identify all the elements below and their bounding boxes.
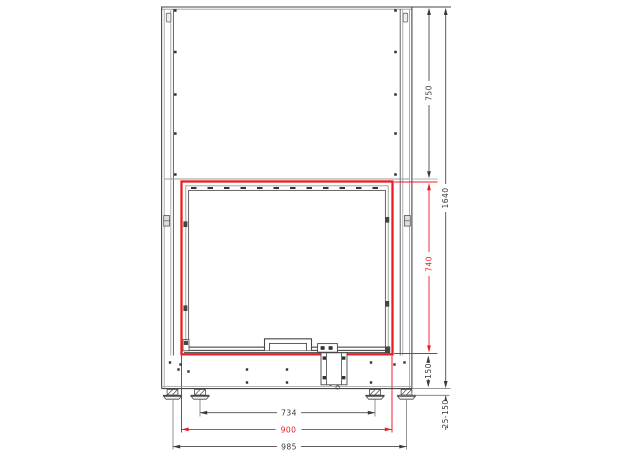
door-glass-frame: [189, 190, 386, 347]
door-latch-plate: [318, 344, 338, 353]
leveling-foot: [397, 389, 416, 399]
mounting-bracket: [321, 353, 347, 389]
drawing-canvas: 750 740 150 1640 25-150 734: [0, 0, 624, 460]
left-side-latch: [164, 216, 170, 227]
dimension-top-section-height: 750: [412, 8, 438, 179]
door-right-corner-block: [385, 346, 390, 352]
door-hinge-marks: [183, 217, 389, 311]
dim-label-750: 750: [425, 85, 434, 101]
leveling-foot: [365, 389, 384, 399]
dim-label-900: 900: [281, 425, 297, 434]
dim-label-985: 985: [281, 443, 297, 452]
leveling-feet: [163, 389, 416, 399]
panel-screws: [174, 9, 397, 176]
right-side-latch: [405, 216, 411, 227]
dimension-overall-height: 1640: [412, 8, 451, 389]
dim-label-150: 150: [424, 363, 433, 379]
door-frame: [183, 186, 390, 353]
door-outer-frame: [186, 186, 388, 351]
unit-body: [161, 7, 451, 389]
left-top-clip: [166, 13, 171, 22]
dim-label-734: 734: [281, 409, 297, 418]
dimension-plinth-height: 150: [424, 356, 433, 388]
door-left-corner-block: [183, 340, 189, 351]
dimension-opening-width: 900: [182, 425, 393, 434]
right-top-clip: [403, 13, 408, 22]
plinth: [162, 353, 412, 389]
dim-label-25-150: 25-150: [441, 399, 450, 428]
dim-label-1640: 1640: [441, 188, 450, 209]
dimension-feet-range: 25-150: [397, 395, 450, 430]
leveling-foot: [190, 389, 209, 399]
opening-highlight-rect: [182, 182, 393, 355]
leveling-foot: [163, 389, 182, 399]
dimension-opening-height: 740: [425, 183, 434, 353]
technical-drawing: 750 740 150 1640 25-150 734: [0, 0, 624, 460]
dimension-feet-spacing: 734: [200, 400, 375, 418]
dim-label-740: 740: [425, 256, 434, 272]
plinth-holes: [169, 361, 406, 385]
door-handle: [265, 339, 312, 351]
